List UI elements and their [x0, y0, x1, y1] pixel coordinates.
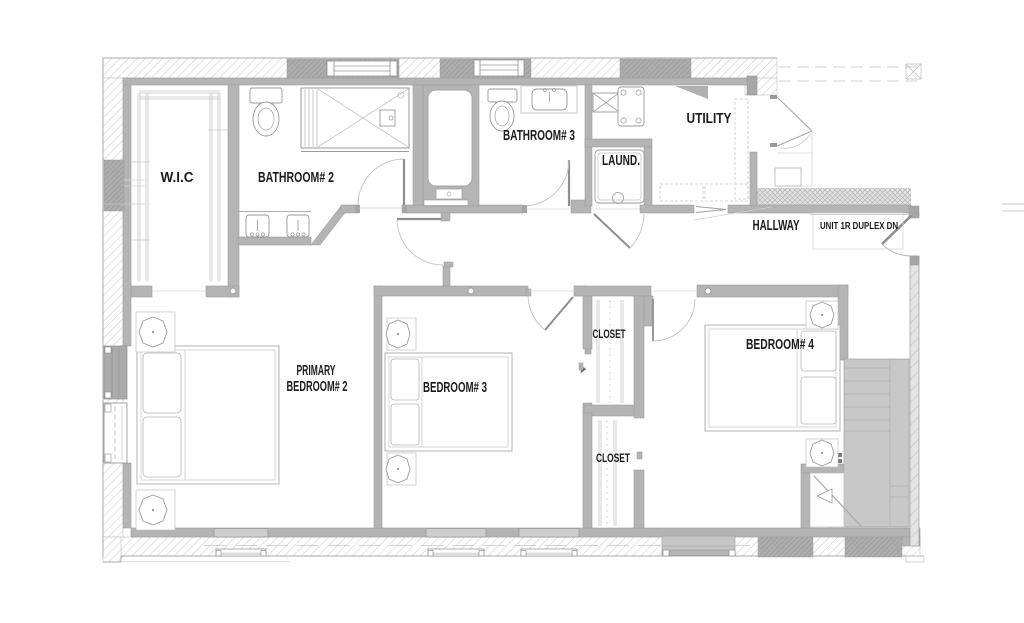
svg-text:PRIMARY: PRIMARY: [297, 363, 336, 379]
svg-text:CLOSET: CLOSET: [596, 453, 630, 465]
svg-text:UTILITY: UTILITY: [687, 111, 732, 127]
svg-text:BEDROOM# 3: BEDROOM# 3: [423, 380, 487, 396]
svg-text:LAUND.: LAUND.: [602, 153, 640, 169]
svg-text:W.I.C: W.I.C: [161, 170, 194, 186]
svg-text:BEDROOM# 4: BEDROOM# 4: [746, 337, 814, 353]
svg-text:BATHROOM# 3: BATHROOM# 3: [503, 128, 575, 144]
svg-text:UNIT 1R DUPLEX DN: UNIT 1R DUPLEX DN: [820, 220, 898, 232]
svg-text:HALLWAY: HALLWAY: [753, 218, 800, 234]
svg-text:BATHROOM# 2: BATHROOM# 2: [258, 170, 334, 186]
svg-text:BEDROOM# 2: BEDROOM# 2: [287, 379, 348, 395]
svg-text:CLOSET: CLOSET: [593, 329, 626, 341]
